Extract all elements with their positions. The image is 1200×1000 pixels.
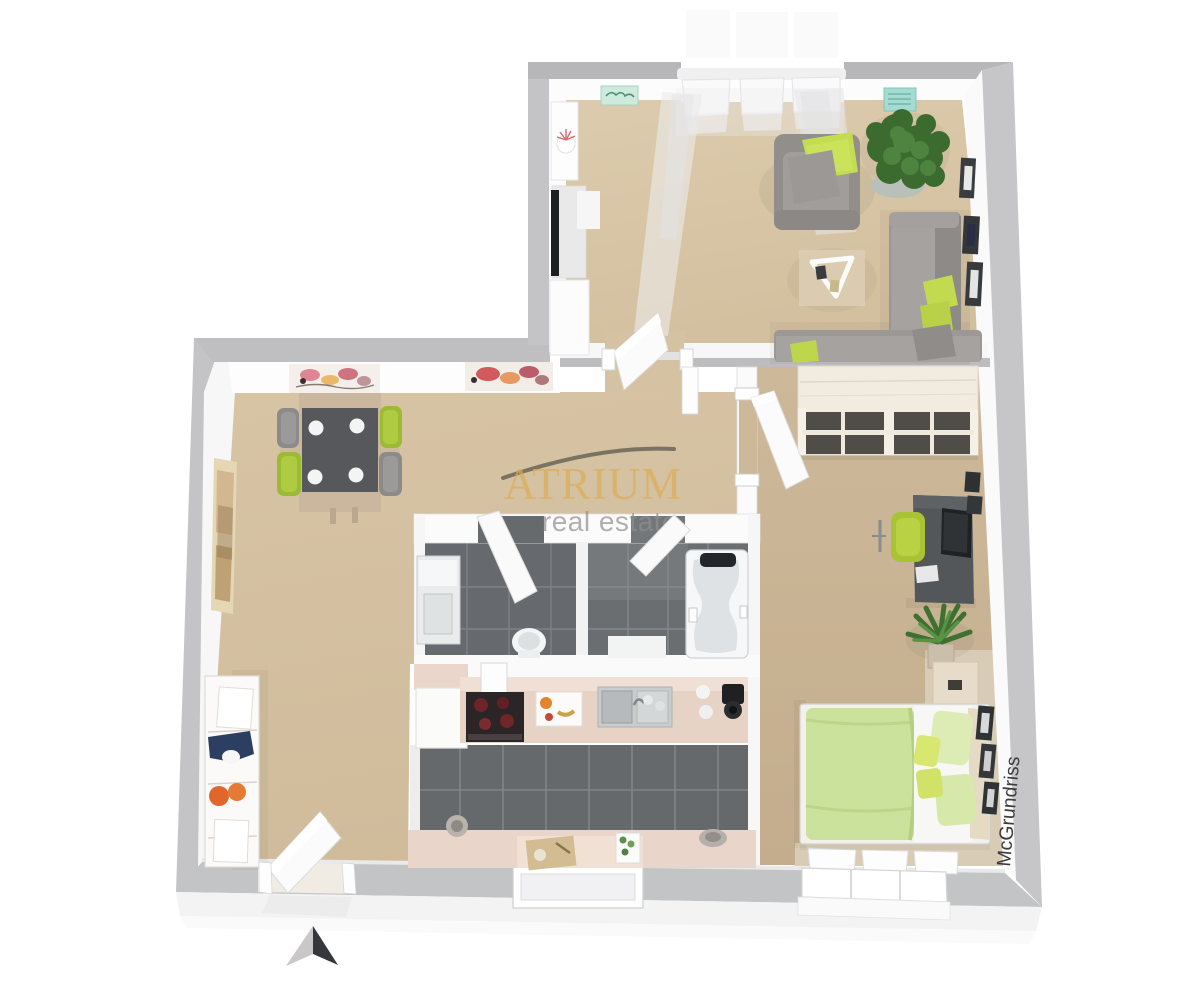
svg-text:ATRIUM: ATRIUM xyxy=(504,459,683,509)
